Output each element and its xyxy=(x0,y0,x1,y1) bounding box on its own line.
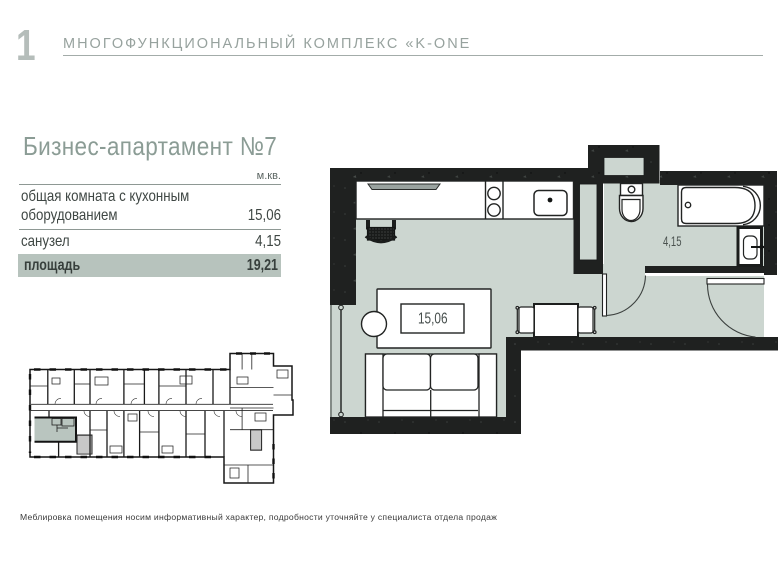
svg-text:4,15: 4,15 xyxy=(663,233,682,249)
svg-text:15,06: 15,06 xyxy=(418,311,448,328)
